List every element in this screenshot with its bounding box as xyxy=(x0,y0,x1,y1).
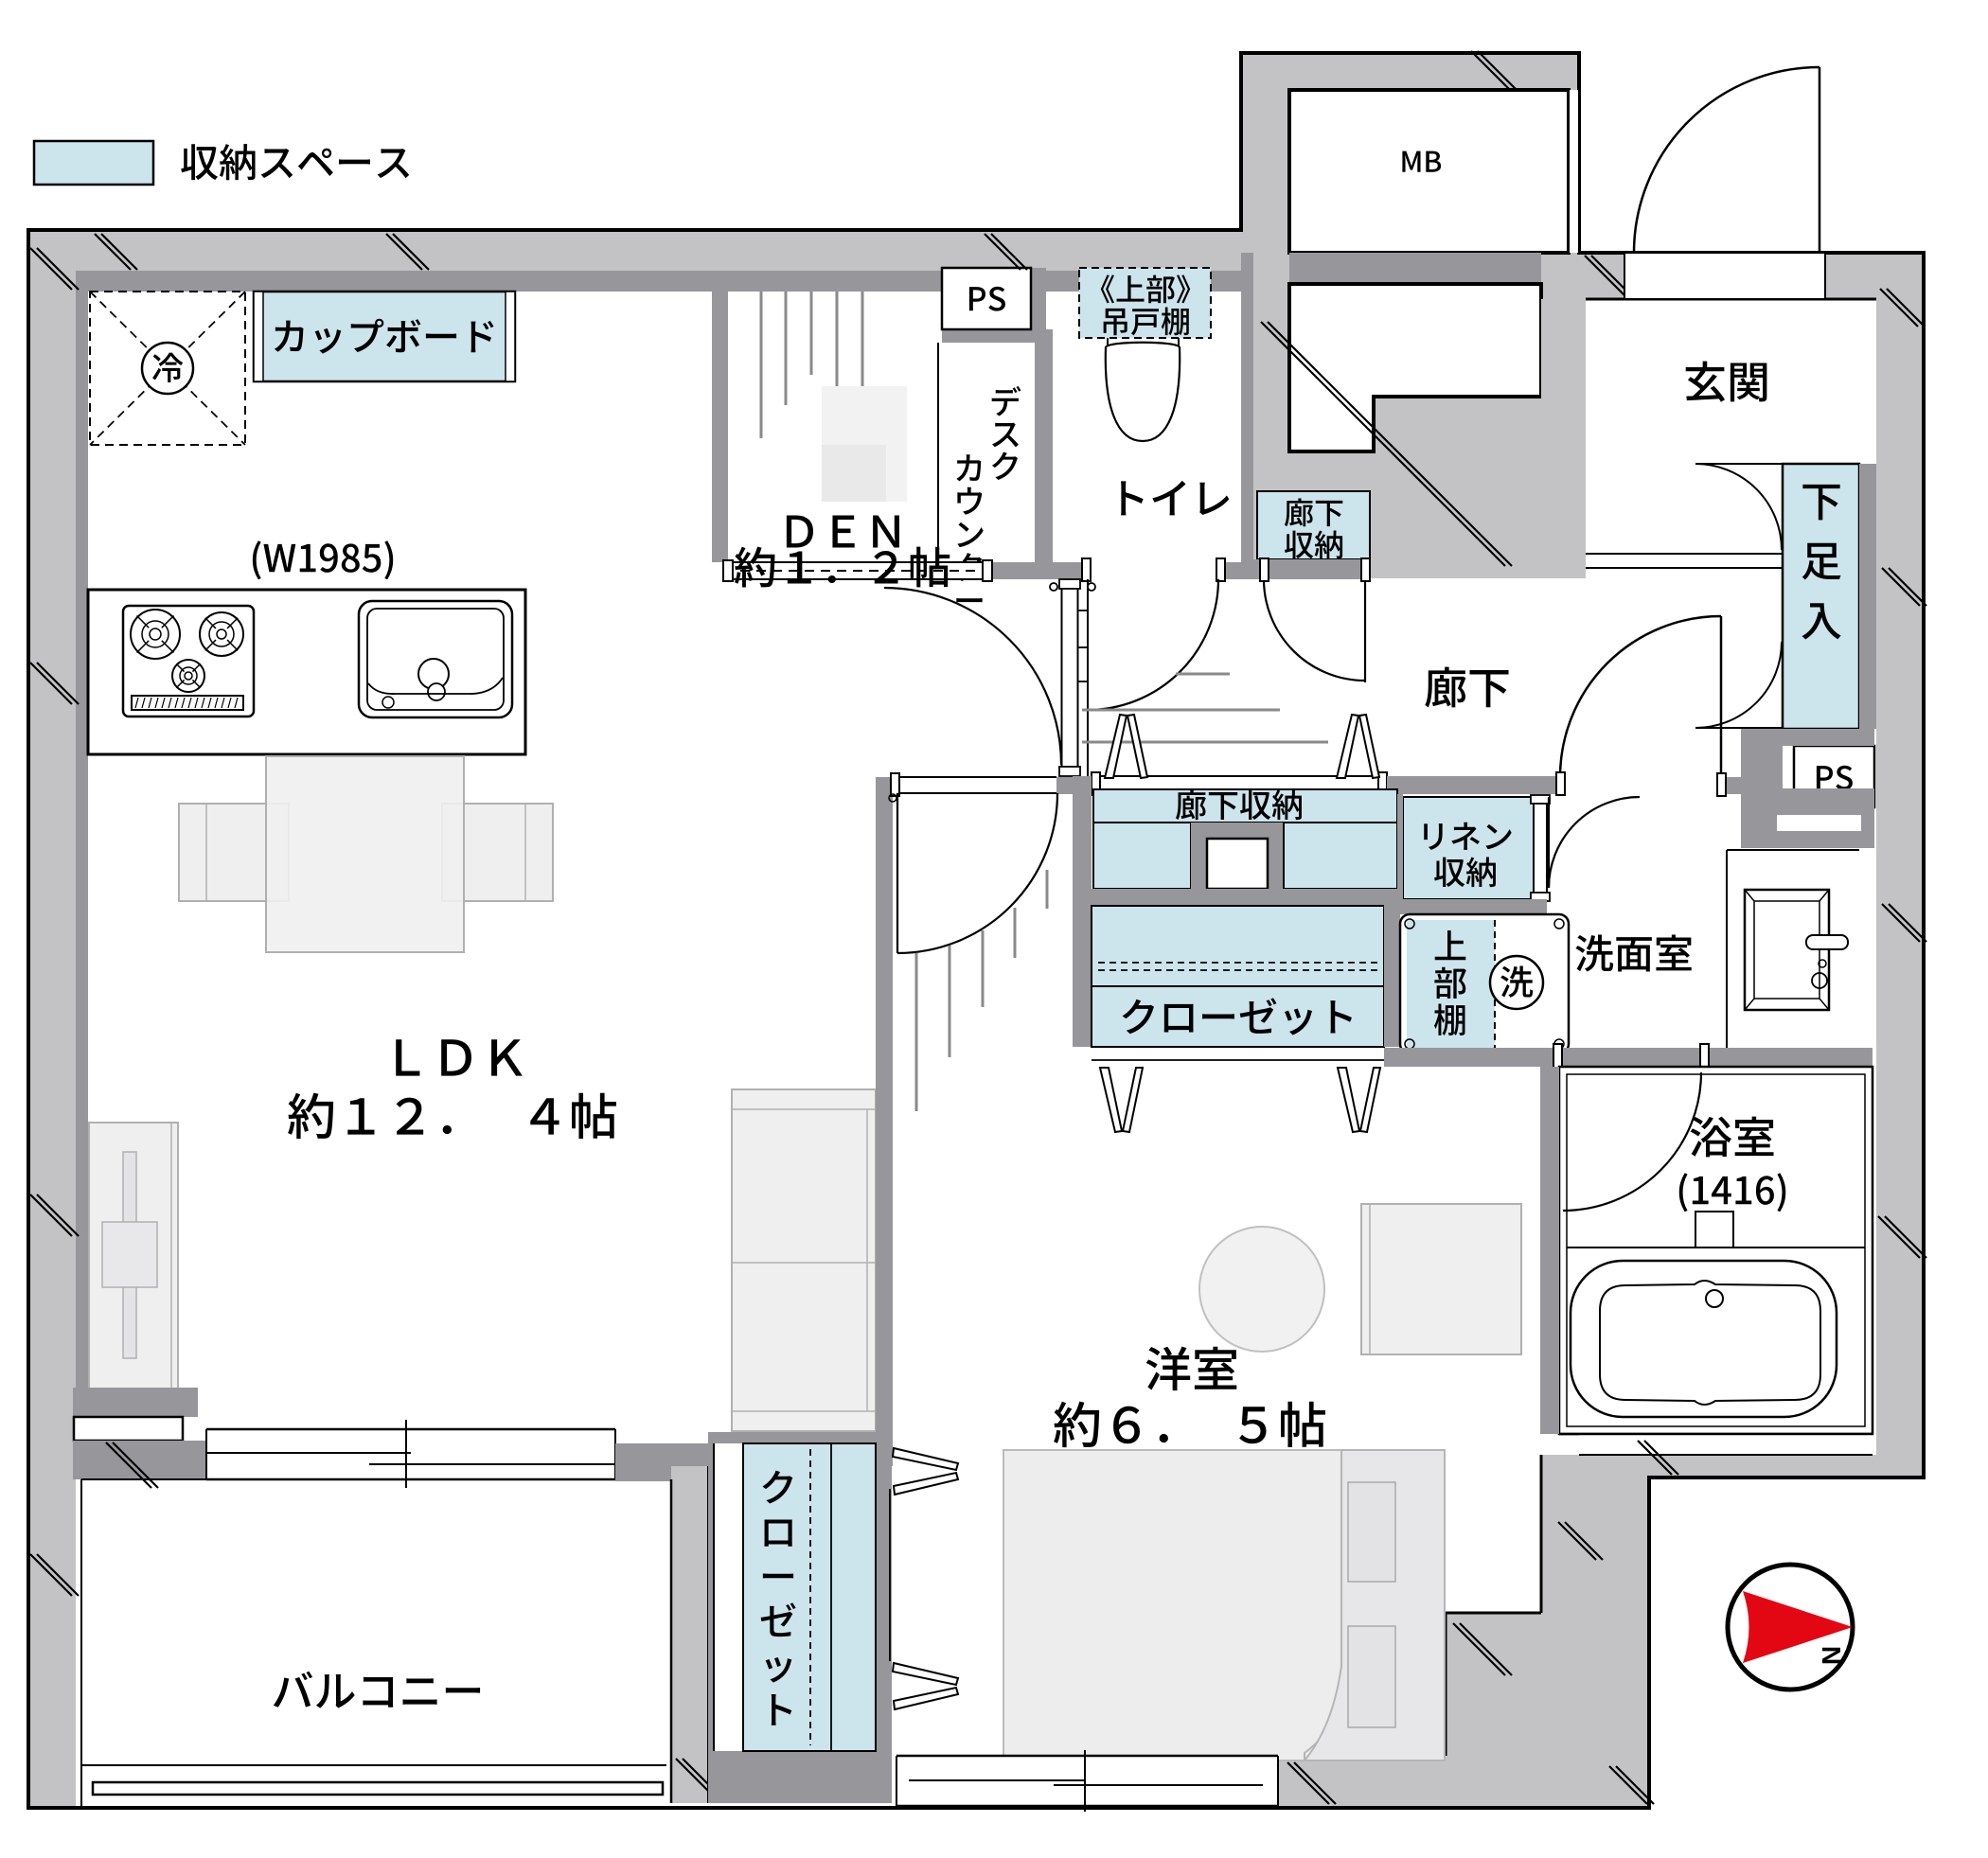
svg-text:N: N xyxy=(1817,1646,1846,1665)
